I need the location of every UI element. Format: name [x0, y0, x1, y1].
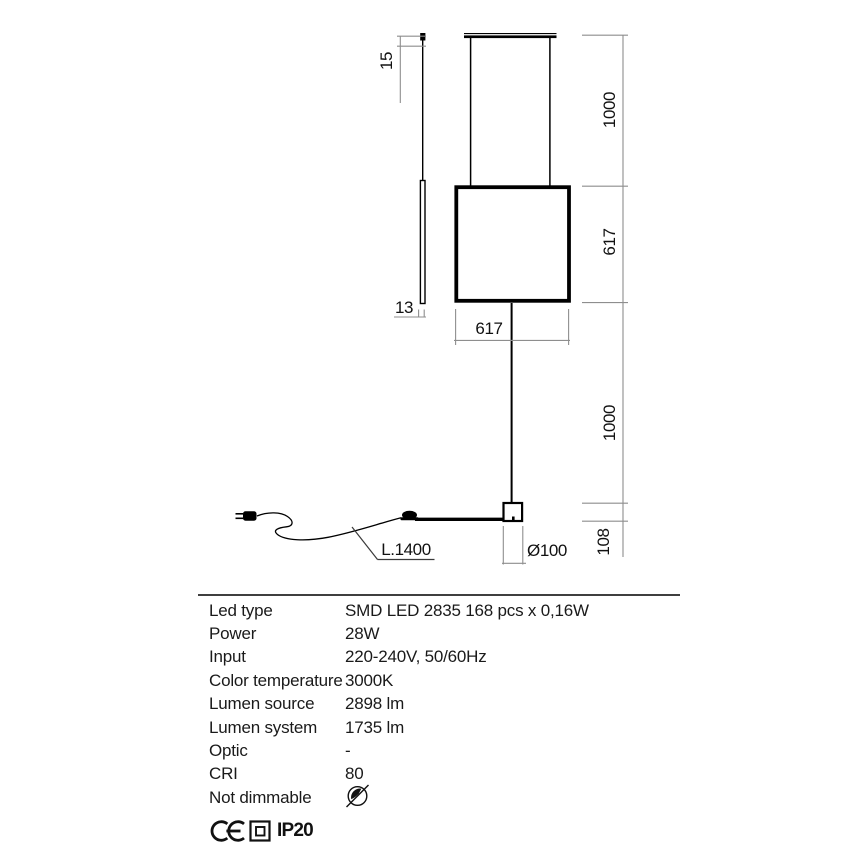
spec-value: -: [345, 741, 679, 761]
table-row: Lumen source 2898 lm: [209, 693, 679, 716]
not-dimmable-icon: [345, 784, 371, 808]
spec-label: Lumen system: [209, 718, 345, 738]
canopy-plate: [464, 35, 557, 38]
table-row: Power 28W: [209, 622, 679, 645]
spec-value: [345, 783, 679, 812]
dim-profile-width: 13: [395, 298, 413, 318]
spec-label: Input: [209, 647, 345, 667]
table-row: Input 220-240V, 50/60Hz: [209, 646, 679, 669]
side-view-profile: [420, 181, 425, 304]
ip-rating: IP20: [277, 820, 313, 842]
dim-frame-width: 617: [475, 319, 502, 339]
spec-label: Power: [209, 624, 345, 644]
cable-wire: [257, 513, 401, 540]
plug-icon: [243, 511, 257, 520]
ce-mark-icon: [209, 819, 245, 843]
dim-cable-length: L.1400: [381, 540, 431, 560]
square-frame: [456, 187, 569, 301]
technical-drawing-page: 15 13 617 1000 617 1000 108 Ø100 L.1400 …: [0, 0, 868, 868]
spec-value: 220-240V, 50/60Hz: [345, 647, 679, 667]
spec-label: Optic: [209, 741, 345, 761]
spec-table: Led type SMD LED 2835 168 pcs x 0,16W Po…: [209, 599, 679, 810]
dim-base-diameter: Ø100: [527, 541, 567, 561]
lamp-side-view: [420, 33, 425, 304]
spec-label: CRI: [209, 764, 345, 784]
dim-tip-height: 15: [377, 52, 397, 70]
spec-label: Led type: [209, 601, 345, 621]
certification-row: IP20: [209, 819, 313, 843]
table-row: Led type SMD LED 2835 168 pcs x 0,16W: [209, 599, 679, 622]
table-row: Lumen system 1735 lm: [209, 716, 679, 739]
spec-value: SMD LED 2835 168 pcs x 0,16W: [345, 601, 679, 621]
spec-value: 28W: [345, 624, 679, 644]
dim-frame-height: 617: [600, 228, 620, 255]
table-row: Color temperature 3000K: [209, 669, 679, 692]
table-row: Not dimmable: [209, 786, 679, 809]
lamp-front-view: [415, 34, 569, 521]
spec-table-top-rule: [198, 594, 680, 596]
switch-base: [401, 517, 419, 520]
base-mark: [512, 517, 515, 521]
spec-label: Color temperature: [209, 671, 345, 691]
power-cable: [236, 511, 419, 540]
dim-base-diameter-lines: [502, 526, 526, 565]
dim-suspension-drop: 1000: [600, 92, 620, 128]
spec-label: Lumen source: [209, 694, 345, 714]
class-ii-insulation-icon: [249, 820, 272, 843]
dim-stem-height: 1000: [600, 405, 620, 441]
dim-15-lines: [397, 36, 426, 103]
spec-value: 80: [345, 764, 679, 784]
spec-value: 1735 lm: [345, 718, 679, 738]
spec-label: Not dimmable: [209, 788, 345, 808]
table-row: Optic -: [209, 739, 679, 762]
spec-value: 2898 lm: [345, 694, 679, 714]
spec-value: 3000K: [345, 671, 679, 691]
dim-base-height: 108: [594, 528, 614, 555]
